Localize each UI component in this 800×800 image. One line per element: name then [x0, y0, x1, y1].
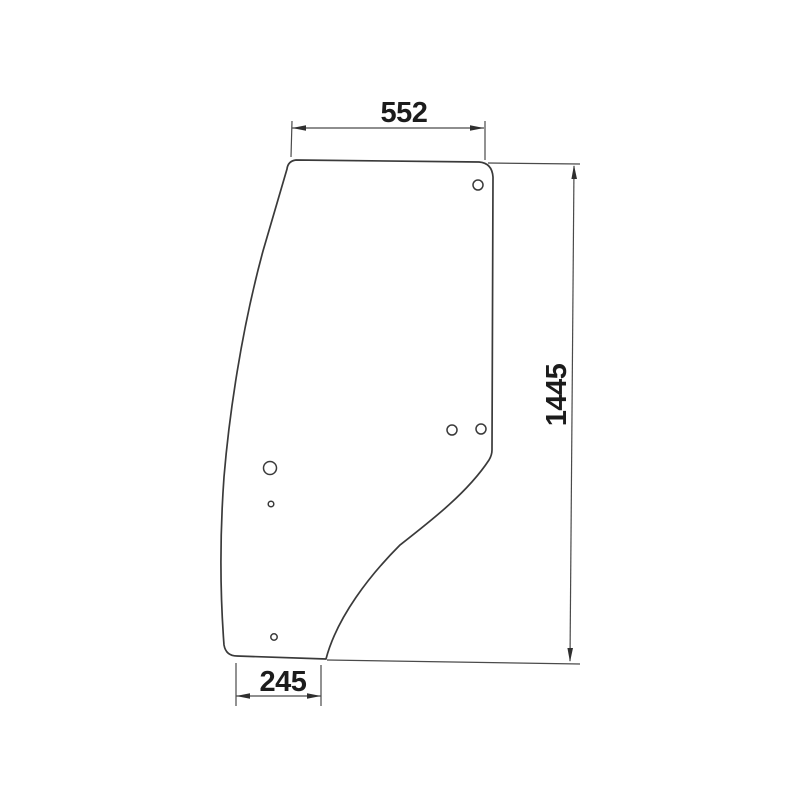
hole-mid-right-right: [476, 424, 486, 434]
dimension-bottom-width: 245: [236, 663, 321, 706]
extension-line: [291, 121, 292, 157]
hole-bottom: [271, 634, 277, 640]
dimension-top-width: 552: [291, 97, 485, 160]
extension-line: [488, 163, 580, 164]
hole-left-large: [264, 462, 277, 475]
hole-left-small: [268, 501, 274, 507]
dimension-label-top-width: 552: [381, 97, 428, 129]
arrowhead-right: [470, 125, 484, 130]
arrowhead-left: [292, 125, 306, 130]
hole-top-right: [473, 180, 483, 190]
dimension-label-height: 1445: [541, 363, 573, 426]
drawing-canvas: 552 1445 245: [0, 0, 800, 800]
arrowhead-left: [236, 693, 250, 698]
arrowhead-right: [307, 693, 321, 698]
arrowhead-bottom: [567, 648, 573, 662]
extension-line: [327, 660, 580, 664]
hole-mid-right-left: [447, 425, 457, 435]
glass-panel-outline: [221, 160, 493, 659]
dimension-label-bottom-width: 245: [260, 666, 307, 698]
arrowhead-top: [571, 165, 577, 179]
technical-drawing: 552 1445 245: [0, 0, 800, 800]
